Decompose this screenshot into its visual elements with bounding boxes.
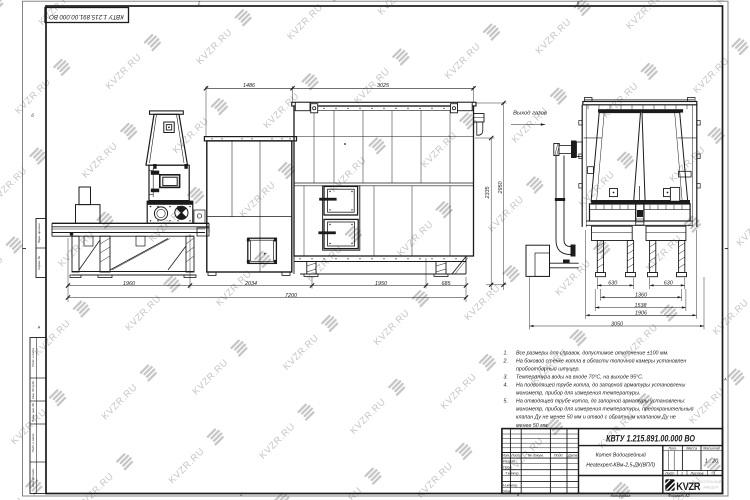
svg-text:KVZR.RU: KVZR.RU xyxy=(348,396,388,436)
svg-text:Лист: Лист xyxy=(664,472,674,476)
svg-text:KVZR.RU: KVZR.RU xyxy=(419,130,459,170)
svg-text:клапан Ду не менее 50 мм и отв: клапан Ду не менее 50 мм и отвод с обрат… xyxy=(516,415,676,421)
svg-text:1: 1 xyxy=(681,472,683,476)
svg-text:Температура воды на входе 70°С: Температура воды на входе 70°С, на выход… xyxy=(516,374,643,380)
svg-text:KVZR.RU: KVZR.RU xyxy=(9,407,49,447)
svg-text:1.: 1. xyxy=(504,350,508,356)
svg-text:Подп.: Подп. xyxy=(554,454,564,458)
svg-text:1 : 20: 1 : 20 xyxy=(705,459,719,465)
svg-text:KVZR.RU: KVZR.RU xyxy=(257,421,297,461)
svg-text:KVZR.RU: KVZR.RU xyxy=(281,332,321,372)
svg-text:Все размеры для справок, допус: Все размеры для справок, допустимое откл… xyxy=(516,350,669,356)
svg-text:KVZR.RU: KVZR.RU xyxy=(395,219,435,259)
svg-text:KVZR.RU: KVZR.RU xyxy=(123,293,163,333)
svg-text:KVZR.RU: KVZR.RU xyxy=(534,16,574,56)
svg-text:1486: 1486 xyxy=(243,83,255,89)
svg-text:KVZR.RU: KVZR.RU xyxy=(238,180,278,220)
svg-text:KVZR.RU: KVZR.RU xyxy=(443,41,483,81)
svg-text:KVZR.RU: KVZR.RU xyxy=(285,2,325,42)
svg-text:Разраб.: Разраб. xyxy=(503,460,516,464)
svg-text:5.: 5. xyxy=(504,399,508,405)
svg-text:Копировал: Копировал xyxy=(611,493,632,498)
svg-text:KVZR.RU: KVZR.RU xyxy=(439,372,479,412)
svg-text:Лист: Лист xyxy=(510,454,520,458)
svg-text:ЗАВОД.РУ: ЗАВОД.РУ xyxy=(703,485,720,489)
svg-text:А: А xyxy=(37,325,41,330)
svg-text:КВТУ 1.215.891.00.000 ВО: КВТУ 1.215.891.00.000 ВО xyxy=(606,433,695,443)
svg-text:7200: 7200 xyxy=(285,293,297,299)
svg-text:KVZR.RU: KVZR.RU xyxy=(711,297,750,337)
svg-text:KVZR.RU: KVZR.RU xyxy=(462,283,502,323)
svg-text:KVZR.RU: KVZR.RU xyxy=(80,140,120,180)
svg-text:KVZR.RU: KVZR.RU xyxy=(167,446,207,486)
svg-text:Формат А2: Формат А2 xyxy=(668,493,691,498)
svg-text:1950: 1950 xyxy=(375,281,387,287)
svg-text:KVZR.RU: KVZR.RU xyxy=(171,116,211,156)
svg-text:КОТЕЛЬНЫЙ: КОТЕЛЬНЫЙ xyxy=(700,480,721,484)
svg-text:Дата: Дата xyxy=(567,454,577,458)
svg-text:На отводящей трубе котла, до з: На отводящей трубе котла, до запорной ар… xyxy=(516,398,686,405)
svg-text:KVZR.RU: KVZR.RU xyxy=(486,194,526,234)
svg-text:KVZR.RU: KVZR.RU xyxy=(0,165,30,205)
svg-text:Т.контр.: Т.контр. xyxy=(505,472,520,476)
svg-text:На боковой стенке котла в обла: На боковой стенке котла в области топочн… xyxy=(516,357,686,364)
svg-text:Инв. № дубл.: Инв. № дубл. xyxy=(31,380,35,399)
svg-text:KVZR.RU: KVZR.RU xyxy=(691,56,731,96)
svg-text:2335: 2335 xyxy=(485,186,491,200)
svg-text:3050: 3050 xyxy=(611,321,623,327)
svg-text:KVZR.RU: KVZR.RU xyxy=(13,76,53,116)
svg-text:Изм.: Изм. xyxy=(502,454,510,458)
svg-text:манометр, прибор для измерения: манометр, прибор для измерения температу… xyxy=(516,406,694,413)
svg-text:Перв. примен.: Перв. примен. xyxy=(37,223,41,244)
svg-text:4.: 4. xyxy=(504,383,508,389)
svg-text:2.: 2. xyxy=(503,358,508,364)
svg-text:пробоотборный штуцер.: пробоотборный штуцер. xyxy=(516,365,580,372)
svg-text:KVZR.RU: KVZR.RU xyxy=(0,496,26,500)
svg-text:3.: 3. xyxy=(504,374,508,380)
svg-text:Котел Водогрейный: Котел Водогрейный xyxy=(596,452,646,459)
svg-text:630: 630 xyxy=(664,281,673,287)
svg-text:1360: 1360 xyxy=(635,293,647,299)
svg-text:3025: 3025 xyxy=(377,83,390,89)
svg-text:Масштаб: Масштаб xyxy=(703,447,721,451)
svg-text:KVZR.RU: KVZR.RU xyxy=(601,80,641,120)
svg-text:KVZR.RU: KVZR.RU xyxy=(735,208,750,248)
svg-text:Лит.: Лит. xyxy=(667,447,676,451)
svg-text:2950: 2950 xyxy=(498,182,504,195)
svg-text:Heatexpert-КВм-2,5-ДК(ВПЛ): Heatexpert-КВм-2,5-ДК(ВПЛ) xyxy=(586,463,655,469)
svg-text:KVZR.RU: KVZR.RU xyxy=(56,229,96,269)
svg-text:685: 685 xyxy=(442,281,452,287)
svg-text:KVZR.RU: KVZR.RU xyxy=(104,52,144,92)
svg-text:630: 630 xyxy=(608,281,617,287)
svg-text:KVZR.RU: KVZR.RU xyxy=(214,268,254,308)
svg-text:KVZR.RU: KVZR.RU xyxy=(0,254,6,294)
svg-text:КВТУ 1.215.891.00.000 ВО: КВТУ 1.215.891.00.000 ВО xyxy=(49,13,124,20)
svg-text:KVZR.RU: KVZR.RU xyxy=(305,244,345,284)
svg-text:б: б xyxy=(31,113,34,118)
svg-text:KVZR.RU: KVZR.RU xyxy=(624,0,664,32)
svg-text:На подводящей трубе котла, до: На подводящей трубе котла, до запорной а… xyxy=(516,382,685,389)
svg-text:Взам. инв. №: Взам. инв. № xyxy=(31,402,35,421)
svg-text:1906: 1906 xyxy=(635,311,647,317)
svg-text:KVZR.RU: KVZR.RU xyxy=(372,308,412,348)
svg-text:Инв. № подл.: Инв. № подл. xyxy=(31,468,35,487)
svg-text:KVZR: KVZR xyxy=(676,482,701,494)
svg-text:KVZR.RU: KVZR.RU xyxy=(194,27,234,67)
svg-text:Выход газов: Выход газов xyxy=(513,110,547,116)
svg-text:KVZR.RU: KVZR.RU xyxy=(553,258,593,298)
svg-text:KVZR.RU: KVZR.RU xyxy=(668,144,708,184)
svg-text:1538: 1538 xyxy=(635,303,647,309)
svg-text:№ докум.: № докум. xyxy=(528,454,544,458)
svg-text:KVZR.RU: KVZR.RU xyxy=(190,357,230,397)
svg-text:Листов: Листов xyxy=(689,472,703,476)
svg-text:Подп. и дата: Подп. и дата xyxy=(31,348,35,367)
svg-text:А: А xyxy=(723,377,727,382)
svg-text:2034: 2034 xyxy=(244,281,257,287)
svg-text:Н.контр.: Н.контр. xyxy=(503,483,518,487)
svg-text:манометр, прибор для измерения: манометр, прибор для измерения температу… xyxy=(516,391,640,397)
svg-text:KVZR.RU: KVZR.RU xyxy=(324,485,364,500)
svg-text:1960: 1960 xyxy=(123,281,135,287)
svg-text:KVZR.RU: KVZR.RU xyxy=(376,0,416,17)
svg-text:Пров.: Пров. xyxy=(503,466,512,470)
svg-text:Утв.: Утв. xyxy=(503,489,511,493)
svg-text:Масса: Масса xyxy=(686,447,697,451)
svg-text:1: 1 xyxy=(714,472,716,476)
svg-text:KVZR.RU: KVZR.RU xyxy=(100,382,140,422)
svg-text:Справ. №: Справ. № xyxy=(37,255,41,270)
svg-text:Подп. и дата: Подп. и дата xyxy=(31,433,35,452)
